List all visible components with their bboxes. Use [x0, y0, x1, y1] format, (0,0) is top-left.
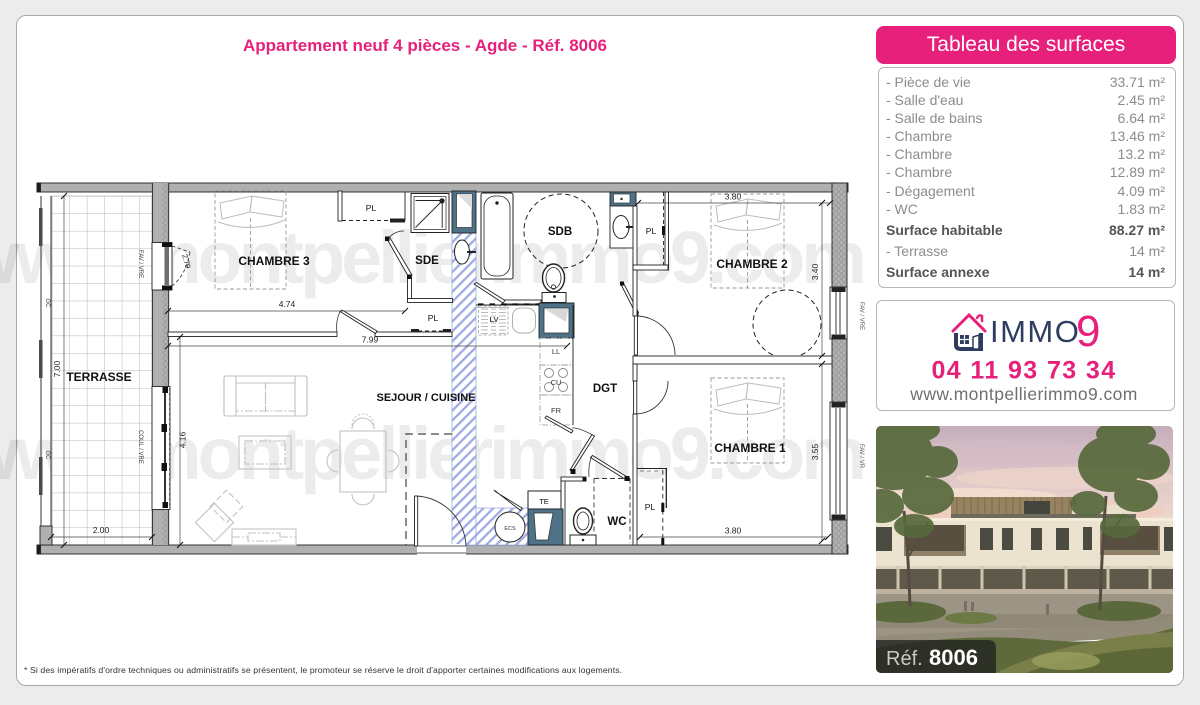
svg-text:3.80: 3.80: [725, 192, 742, 202]
svg-text:Réf.: Réf.: [886, 648, 923, 670]
svg-text:3.40: 3.40: [810, 263, 820, 280]
svg-text:CHAMBRE 1: CHAMBRE 1: [714, 441, 786, 455]
svg-text:www.montpellierimmo9.com: www.montpellierimmo9.com: [909, 384, 1137, 404]
svg-text:CHAMBRE 3: CHAMBRE 3: [238, 254, 310, 268]
svg-text:9: 9: [1076, 307, 1100, 356]
svg-text:2.00: 2.00: [93, 525, 110, 535]
svg-text:WC: WC: [607, 516, 626, 528]
svg-text:PL: PL: [428, 313, 439, 323]
svg-text:SEJOUR / CUISINE: SEJOUR / CUISINE: [376, 392, 475, 404]
svg-text:FAV / VRE: FAV / VRE: [858, 302, 864, 330]
svg-text:7.99: 7.99: [362, 335, 379, 345]
svg-text:PL: PL: [366, 203, 377, 213]
svg-text:GC: GC: [44, 299, 50, 309]
svg-text:FAV / VR: FAV / VR: [858, 444, 864, 469]
svg-text:GC: GC: [44, 451, 50, 461]
svg-text:LV: LV: [489, 315, 498, 324]
svg-text:TERRASSE: TERRASSE: [66, 370, 131, 384]
svg-text:SDE: SDE: [415, 255, 439, 267]
svg-text:PL: PL: [645, 502, 656, 512]
svg-text:CU: CU: [551, 378, 562, 387]
svg-text:ECS: ECS: [504, 526, 516, 532]
svg-text:DGT: DGT: [593, 383, 617, 395]
svg-text:COUL / VRE: COUL / VRE: [137, 430, 143, 464]
svg-text:SDB: SDB: [548, 226, 572, 238]
svg-text:4.16: 4.16: [178, 431, 188, 448]
svg-text:IMMO: IMMO: [990, 314, 1080, 349]
svg-text:8006: 8006: [929, 645, 978, 670]
svg-text:TE: TE: [539, 497, 549, 506]
svg-text:3.80: 3.80: [725, 526, 742, 536]
svg-text:4.74: 4.74: [279, 299, 296, 309]
svg-text:CHAMBRE 2: CHAMBRE 2: [716, 257, 788, 271]
svg-text:FR: FR: [551, 406, 562, 415]
svg-text:LL: LL: [552, 347, 560, 356]
svg-text:3.55: 3.55: [810, 443, 820, 460]
svg-text:PL: PL: [646, 226, 657, 236]
svg-text:04 11 93 73 34: 04 11 93 73 34: [931, 357, 1116, 385]
svg-text:7.00: 7.00: [52, 360, 62, 377]
svg-text:FAV / VRE: FAV / VRE: [137, 250, 143, 278]
